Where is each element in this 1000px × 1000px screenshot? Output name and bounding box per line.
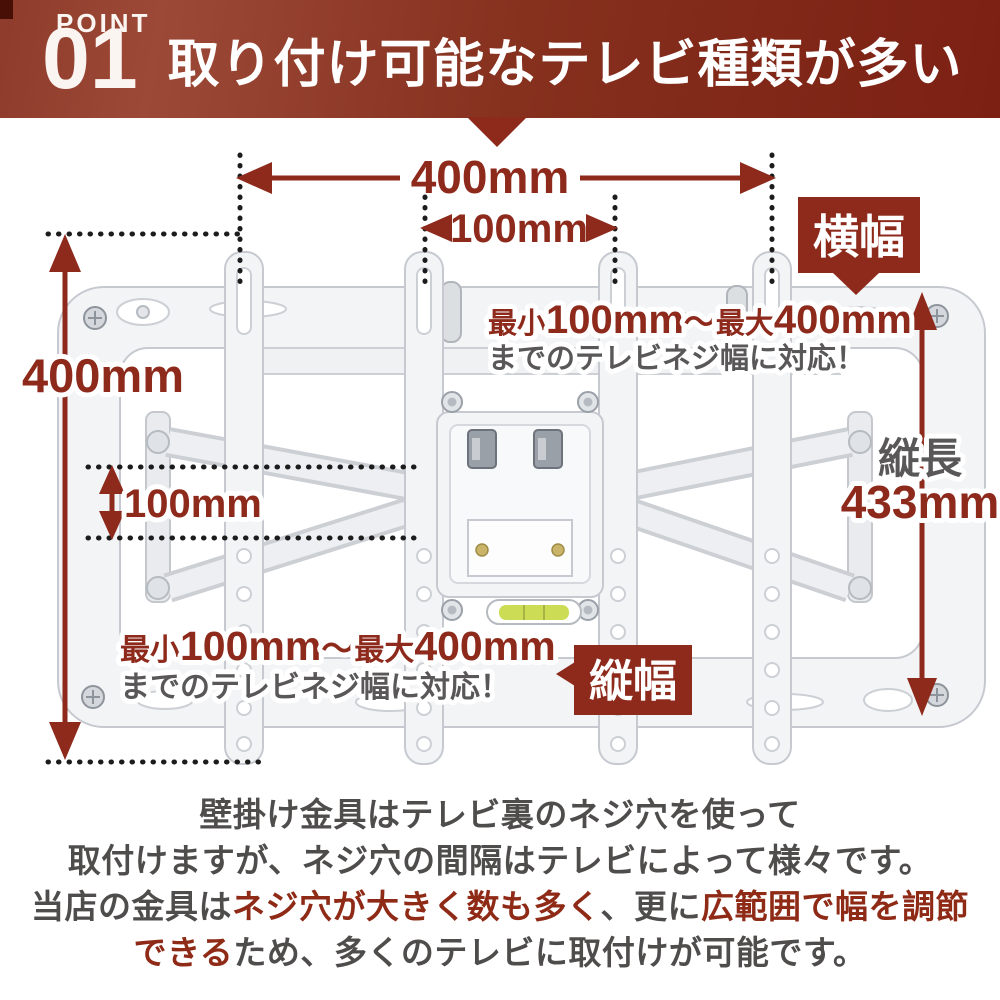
dim-left-inner-label: 100mm (124, 482, 262, 526)
paragraph-text: 壁掛け金具はテレビ裏のネジ穴を使って (199, 796, 800, 833)
screw-width-note-bottom: 最小100mm〜最大400mm までのテレビネジ幅に対応！ (120, 623, 556, 704)
arrow-down-icon (49, 722, 81, 760)
dim-right-height-label: 縦長 (878, 435, 963, 482)
dim-right-height-value: 433mm (841, 476, 1000, 528)
paragraph-line: 当店の金具はネジ穴が大きく数も多く、更に広範囲で幅を調節 (0, 884, 1000, 930)
width-badge-label: 横幅 (813, 211, 905, 263)
description-paragraph: 壁掛け金具はテレビ裏のネジ穴を使って 取付けますが、ネジ穴の間隔はテレビによって… (0, 792, 1000, 976)
dim-top-width-label: 400mm (411, 151, 570, 203)
product-image: POINT 01 取り付け可能なテレビ種類が多い (0, 0, 1000, 1000)
vesa-plate (437, 392, 603, 620)
paragraph-highlight: 広範囲で幅を調節 (701, 888, 969, 925)
paragraph-line: 取付けますが、ネジ穴の間隔はテレビによって様々です。 (0, 838, 1000, 884)
note-bottom-line2: までのテレビネジ幅に対応！ (120, 671, 510, 704)
screw-icon (82, 686, 104, 708)
width-badge: 横幅 (798, 197, 920, 295)
screw-icon (84, 307, 106, 329)
paragraph-text: 当店の金具は (31, 888, 232, 925)
paragraph-text: ため、多くのテレビに取付けが可能です。 (233, 934, 866, 971)
dim-top-width: 400mm (236, 151, 776, 203)
height-badge: 縦幅 (556, 645, 692, 715)
paragraph-highlight: できる (133, 934, 233, 971)
screw-width-note-top: 最小100mm〜最大400mm までのテレビネジ幅に対応！ (488, 298, 912, 375)
dim-top-inner-label: 100mm (450, 207, 588, 251)
paragraph-text: 、更に (601, 888, 702, 925)
arrow-up-icon (49, 234, 81, 272)
paragraph-line: 壁掛け金具はテレビ裏のネジ穴を使って (0, 792, 1000, 838)
banner-callout-arrow-icon (467, 117, 527, 147)
height-badge-label: 縦幅 (589, 657, 677, 706)
paragraph-highlight: ネジ穴が大きく数も多く (232, 888, 601, 925)
paragraph-text: 取付けますが、ネジ穴の間隔はテレビによって様々です。 (68, 842, 932, 879)
paragraph-line: できるため、多くのテレビに取付けが可能です。 (0, 930, 1000, 976)
dim-left-height-label: 400mm (22, 349, 184, 402)
note-top-line2: までのテレビネジ幅に対応！ (488, 342, 865, 375)
note-top-line1: 最小100mm〜最大400mm (488, 298, 912, 342)
note-bottom-line1: 最小100mm〜最大400mm (120, 623, 556, 669)
dim-top-inner-width: 100mm (420, 207, 618, 251)
spirit-level (487, 600, 581, 624)
